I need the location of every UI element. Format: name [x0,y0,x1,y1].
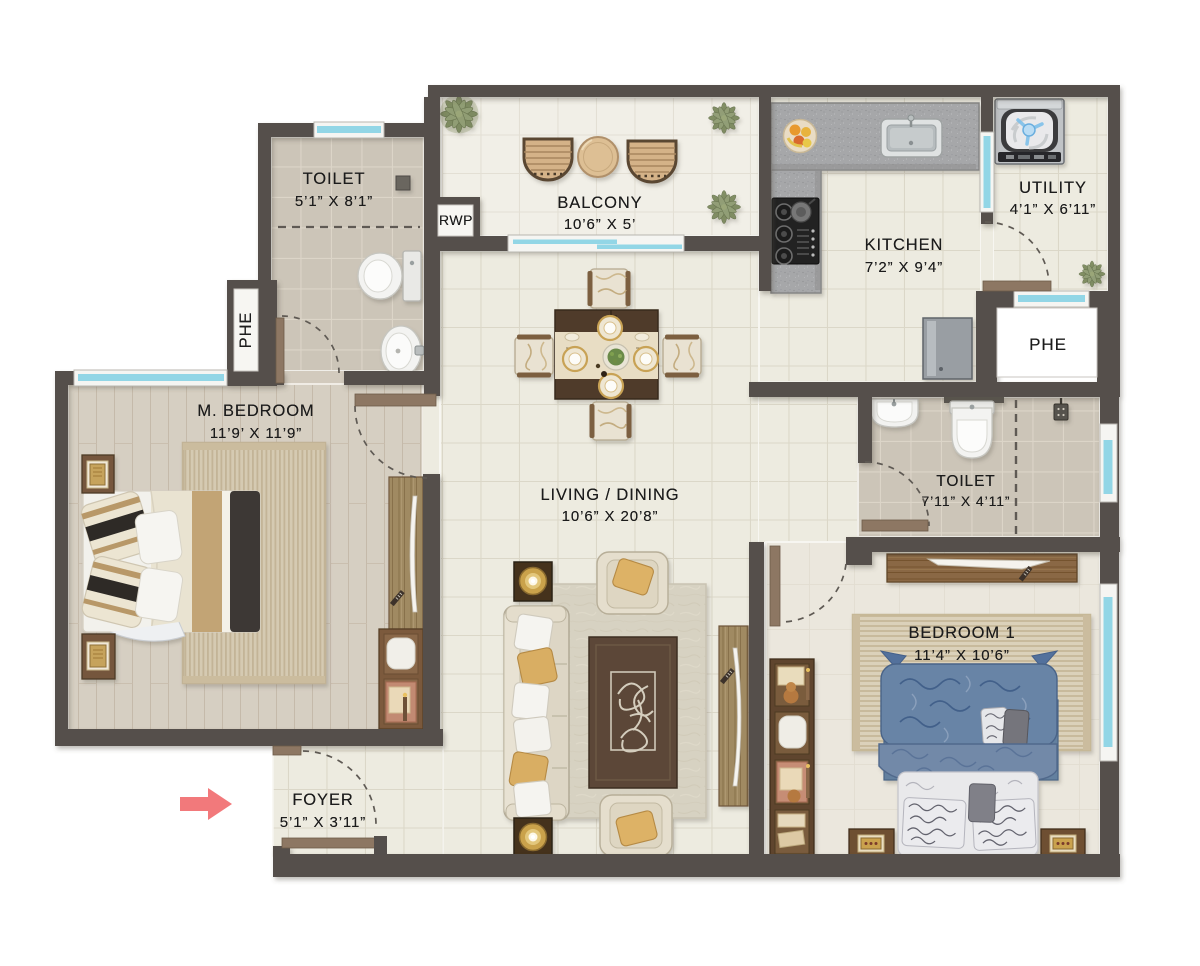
svg-text:RWP: RWP [439,212,473,228]
svg-text:10’6” X 5’: 10’6” X 5’ [564,216,636,233]
svg-text:PHE: PHE [1029,335,1067,354]
svg-text:BALCONY: BALCONY [557,194,642,212]
svg-text:5’1” X 3’11”: 5’1” X 3’11” [280,814,366,831]
svg-text:KITCHEN: KITCHEN [865,236,944,254]
svg-text:10’6” X 20’8”: 10’6” X 20’8” [562,508,659,525]
svg-text:TOILET: TOILET [936,473,995,490]
svg-text:7’11” X 4’11”: 7’11” X 4’11” [921,493,1010,509]
svg-text:LIVING / DINING: LIVING / DINING [540,486,679,504]
svg-text:TOILET: TOILET [303,170,366,188]
svg-text:11’4” X 10’6”: 11’4” X 10’6” [914,647,1010,664]
svg-text:PHE: PHE [237,312,255,349]
svg-text:11’9’ X 11’9”: 11’9’ X 11’9” [210,425,302,442]
svg-text:4’1” X 6’11”: 4’1” X 6’11” [1010,201,1096,218]
svg-text:7’2” X 9’4”: 7’2” X 9’4” [865,259,943,276]
svg-text:M. BEDROOM: M. BEDROOM [197,402,314,420]
svg-text:FOYER: FOYER [292,791,353,809]
svg-text:UTILITY: UTILITY [1019,179,1087,197]
svg-text:5’1” X 8’1”: 5’1” X 8’1” [295,193,373,210]
svg-text:BEDROOM 1: BEDROOM 1 [908,624,1015,642]
